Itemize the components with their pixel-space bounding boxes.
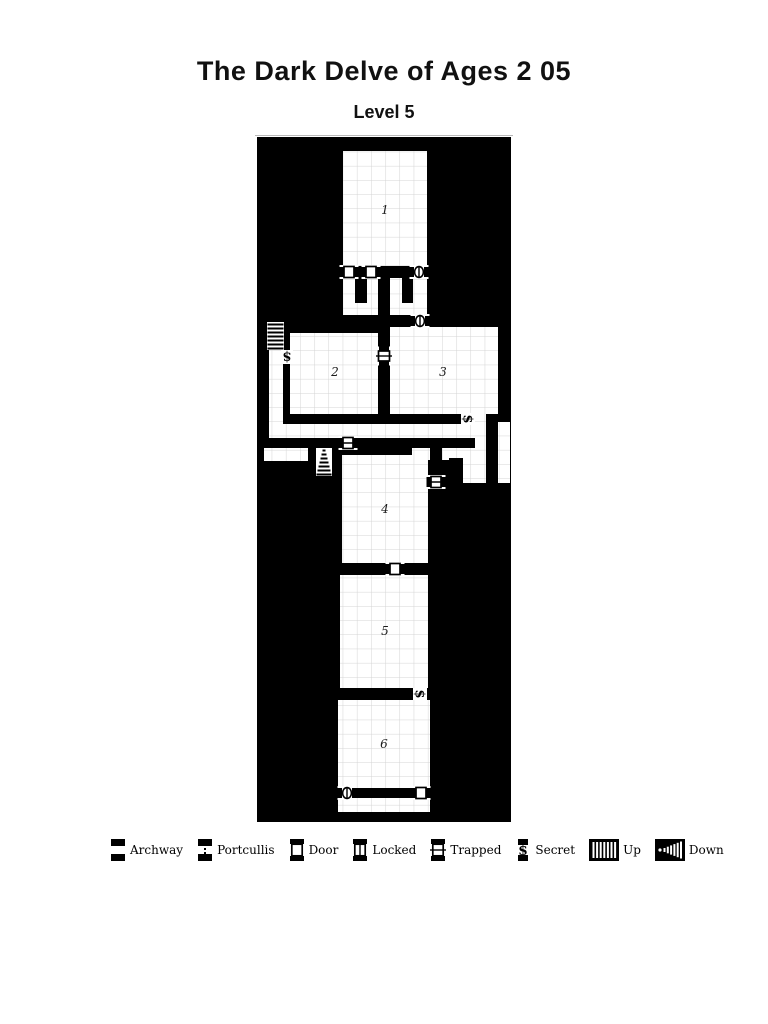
legend-item-down: Down (655, 839, 724, 861)
secret-door-icon: $ (281, 349, 293, 365)
legend-label-trapped: Trapped (450, 843, 501, 857)
legend-label-door: Door (309, 843, 339, 857)
wall-segment (331, 448, 341, 476)
legend-label-locked: Locked (372, 843, 416, 857)
door-door-icon (412, 786, 431, 800)
room-number-5: 5 (381, 624, 389, 638)
svg-text:$: $ (412, 689, 427, 698)
wall-segment (308, 448, 317, 476)
door-door-icon (340, 265, 359, 279)
stairs-up-icon (267, 322, 284, 350)
locked-door-icon (339, 436, 358, 450)
floor-area (269, 424, 486, 438)
legend-label-secret: Secret (535, 843, 575, 857)
secret-door-icon: $ (460, 413, 476, 425)
svg-text:$: $ (282, 349, 291, 364)
room-number-4: 4 (380, 502, 389, 516)
legend-label-up: Up (623, 843, 641, 857)
legend-door-icon (289, 839, 305, 861)
map-top-divider (255, 135, 513, 136)
level-subtitle: Level 5 (0, 102, 768, 123)
wall-segment (378, 278, 390, 348)
floor-area (475, 408, 486, 448)
wall-segment (402, 278, 413, 303)
legend-secret-icon: $ (515, 839, 531, 861)
wall-segment (356, 438, 475, 448)
map-legend: ArchwayPortcullisDoorLockedTrapped$Secre… (110, 839, 670, 861)
room-number-1: 1 (381, 203, 389, 217)
floor-area (463, 460, 486, 483)
legend-item-archway: Archway (110, 839, 183, 861)
page-title: The Dark Delve of Ages 2 05 (0, 56, 768, 87)
room-number-6: 6 (380, 737, 388, 751)
wall-segment (430, 448, 442, 476)
wall-segment (283, 414, 461, 424)
legend-up-icon (589, 839, 619, 861)
legend-item-trapped: Trapped (430, 839, 501, 861)
legend-down-icon (655, 839, 685, 861)
legend-label-down: Down (689, 843, 724, 857)
wall-segment (449, 458, 463, 510)
legend-archway-icon (110, 839, 126, 861)
svg-text:$: $ (519, 843, 529, 859)
legend-item-door: Door (289, 839, 339, 861)
legend-portcullis-icon (197, 839, 213, 861)
stairs-down-icon (316, 448, 332, 476)
wall-segment (390, 315, 411, 327)
legend-label-archway: Archway (130, 843, 183, 857)
floor-area (498, 422, 510, 483)
room-number-2: 2 (330, 365, 339, 379)
wall-segment (352, 788, 415, 798)
legend-label-portcullis: Portcullis (217, 843, 275, 857)
legend-item-secret: $Secret (515, 839, 575, 861)
portcullis-door-icon (410, 265, 429, 279)
locked-door-icon (427, 475, 446, 489)
trapped-door-icon (376, 347, 392, 366)
legend-item-portcullis: Portcullis (197, 839, 275, 861)
legend-item-locked: Locked (352, 839, 416, 861)
portcullis-door-icon (338, 786, 357, 800)
legend-item-up: Up (589, 839, 641, 861)
wall-segment (379, 266, 411, 278)
wall-segment (355, 278, 367, 303)
dungeon-map: $$$123456 (257, 137, 511, 822)
wall-segment (378, 364, 390, 414)
door-door-icon (386, 562, 405, 576)
dungeon-map-svg: $$$123456 (257, 137, 511, 822)
room-number-3: 3 (439, 365, 447, 379)
portcullis-door-icon (411, 314, 430, 328)
door-door-icon (362, 265, 381, 279)
legend-locked-icon (352, 839, 368, 861)
wall-segment (343, 315, 378, 327)
legend-trapped-icon (430, 839, 446, 861)
secret-door-icon: $ (412, 688, 428, 700)
svg-text:$: $ (460, 414, 475, 423)
